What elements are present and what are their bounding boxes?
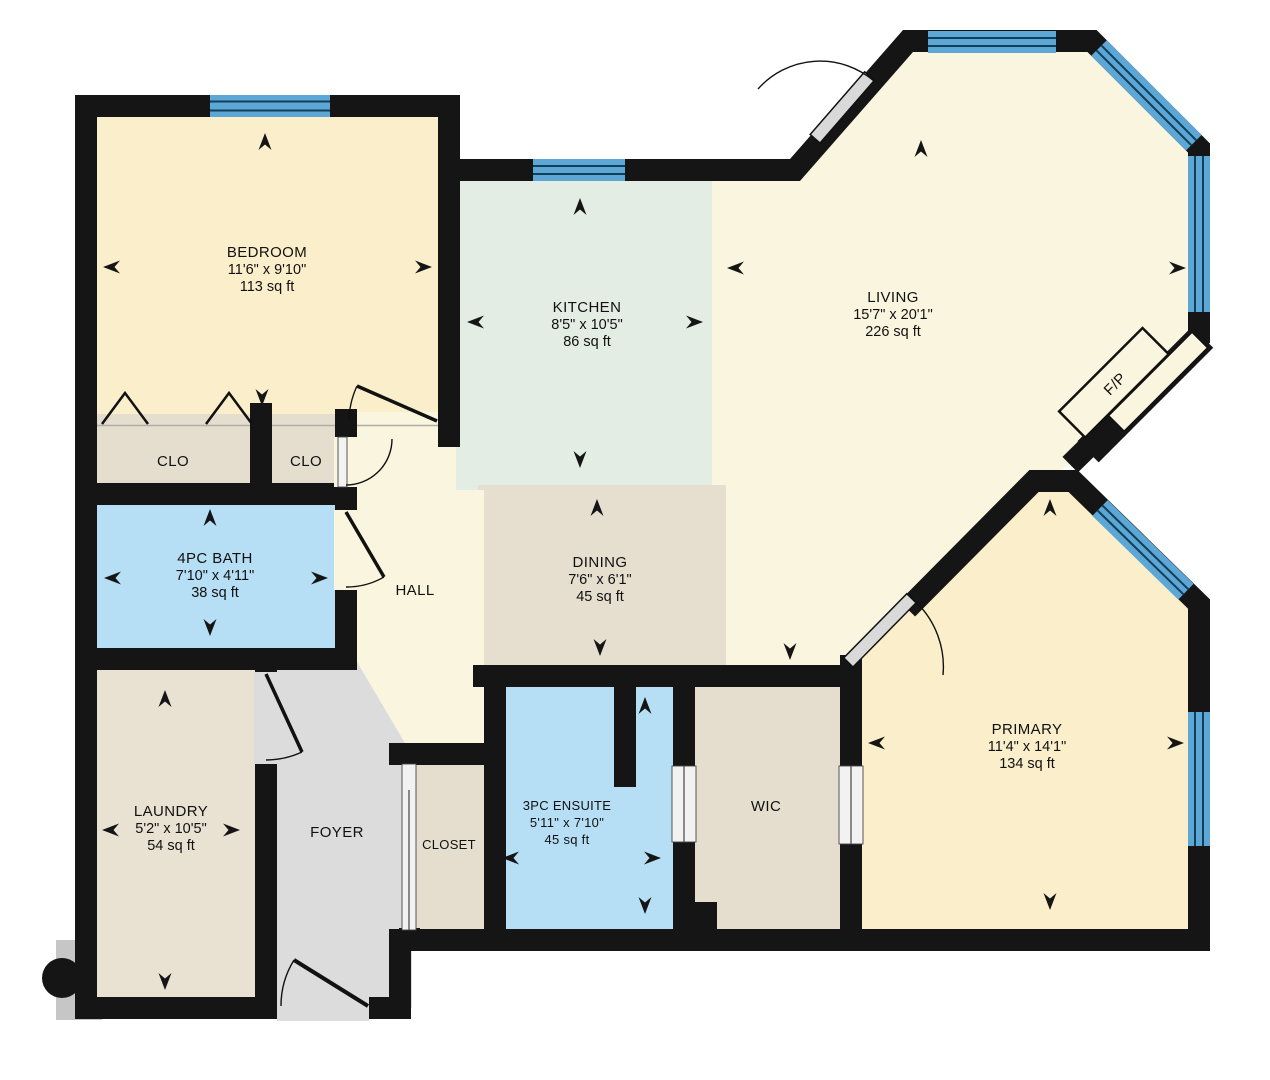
wic-label: WIC bbox=[751, 798, 781, 815]
kitchen-area: 86 sq ft bbox=[563, 334, 611, 350]
dining-dims: 7'6" x 6'1" bbox=[568, 572, 631, 588]
laundry-area: 54 sq ft bbox=[147, 838, 195, 854]
primary-area: 134 sq ft bbox=[999, 756, 1055, 772]
closet-label: CLOSET bbox=[422, 837, 476, 852]
closet-wall-stub bbox=[399, 928, 420, 951]
primary-dims: 11'4" x 14'1" bbox=[988, 739, 1066, 755]
living-bay-window-top bbox=[928, 31, 1056, 53]
bath-area: 38 sq ft bbox=[191, 585, 239, 601]
hall-label: HALL bbox=[395, 582, 434, 599]
room-fills bbox=[42, 33, 1208, 1020]
bedroom-dims: 11'6" x 9'10" bbox=[228, 262, 306, 278]
ensuite-dims: 5'11" x 7'10" bbox=[530, 815, 604, 830]
dining-area: 45 sq ft bbox=[576, 589, 624, 605]
floor-plan-canvas: F/P bbox=[0, 0, 1270, 1080]
kitchen-name: KITCHEN bbox=[553, 299, 622, 316]
bedroom-area: 113 sq ft bbox=[240, 279, 295, 295]
closet-sliding-door bbox=[402, 764, 416, 930]
clo-right-label: CLO bbox=[290, 453, 322, 470]
bath-dims: 7'10" x 4'11" bbox=[176, 568, 254, 584]
living-area: 226 sq ft bbox=[865, 324, 921, 340]
living-dims: 15'7" x 20'1" bbox=[853, 307, 933, 323]
floor-plan-page: F/P bbox=[0, 0, 1270, 1080]
living-name: LIVING bbox=[867, 289, 919, 306]
laundry-dims: 5'2" x 10'5" bbox=[135, 821, 206, 837]
bedroom-name: BEDROOM bbox=[227, 244, 307, 261]
living-right-window bbox=[1188, 156, 1210, 312]
dining-name: DINING bbox=[573, 554, 628, 571]
foyer-label: FOYER bbox=[310, 824, 364, 841]
primary-name: PRIMARY bbox=[992, 721, 1063, 738]
ensuite-area: 45 sq ft bbox=[544, 832, 589, 847]
wic-wall-step bbox=[673, 902, 717, 940]
bedroom-window bbox=[210, 95, 330, 117]
ensuite-name: 3PC ENSUITE bbox=[523, 798, 612, 813]
kitchen-window bbox=[533, 159, 625, 181]
wic-right-sliding-door bbox=[839, 766, 863, 844]
primary-right-window bbox=[1188, 712, 1210, 846]
clo-left-label: CLO bbox=[157, 453, 189, 470]
wic-left-sliding-door bbox=[672, 766, 696, 842]
kitchen-dims: 8'5" x 10'5" bbox=[551, 317, 622, 333]
laundry-name: LAUNDRY bbox=[134, 803, 208, 820]
bath-name: 4PC BATH bbox=[177, 550, 252, 567]
